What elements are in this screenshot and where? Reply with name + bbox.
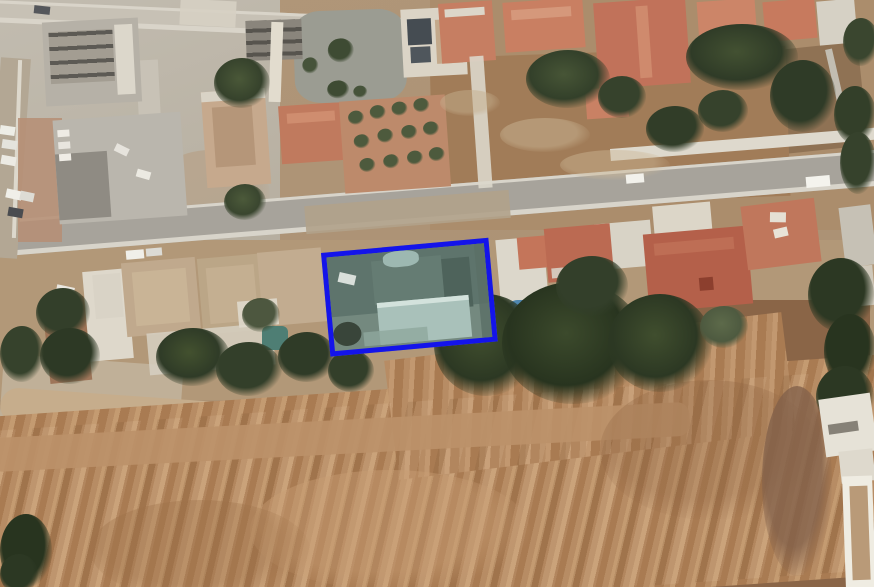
roof-ridge [287,110,336,123]
tree [0,554,38,587]
louver-rows [48,29,115,84]
car-on-road [806,175,831,188]
orchard-tree [391,101,408,116]
teal-light-strip [363,327,428,347]
carpark-building [53,112,188,225]
solar-array [410,46,431,63]
parked-car [146,247,163,256]
orchard-tree [369,105,386,120]
tree [556,256,628,316]
white-framed-court [842,476,874,587]
tree [840,132,874,194]
carpark-dark-half [55,151,111,220]
parked-car [0,125,16,136]
plaza-tree [302,57,319,74]
tree [598,76,646,118]
orchard-tree [353,134,370,149]
car-on-road [626,173,645,184]
parked-car [136,169,152,181]
white-rooftop-unit [773,227,789,239]
tree [224,184,266,220]
tree [214,58,270,108]
white-roof-edge [114,24,136,95]
tree [328,350,374,392]
orchard-tree [423,121,440,136]
white-building-br [818,393,874,458]
tree [216,342,282,396]
orchard-tree [377,128,394,143]
terracotta-roof [502,0,585,53]
lot-debris [560,150,670,180]
parked-car [126,249,145,260]
tree [843,18,874,66]
parcel-boundary [321,238,498,357]
roof-ridge [654,237,735,256]
tree [278,332,336,382]
plaza-tree [327,80,350,99]
louver-roof-building [42,18,142,107]
tree [0,326,44,382]
courtyard-inner [212,105,256,168]
solar-array [407,18,432,45]
parked-car [114,143,130,156]
terracotta-roof [740,198,821,271]
tree [242,298,280,332]
paved-plaza [292,8,407,104]
dark-opening [828,421,859,435]
parked-car [57,129,69,137]
beige-roof-house [121,257,201,337]
white-driveway [92,273,124,319]
parked-car [1,139,17,150]
orchard-tree [383,154,400,169]
orchard-tree [428,147,445,162]
white-structure [179,0,236,27]
satellite-map-image [0,0,874,587]
plaza-tree [353,85,367,97]
orchard-tree [401,124,418,139]
lot-debris [500,118,590,152]
orchard-tree [359,157,376,172]
terracotta-roof [438,0,496,64]
tree [40,328,100,384]
parked-car [58,141,70,149]
orchard [339,94,451,193]
bush [332,321,362,347]
roof-highlight [132,268,191,327]
plaza-tree [327,38,354,63]
orchard-tree [413,98,430,113]
dark-skylight [699,277,714,291]
tree [698,90,748,132]
roof-ridge [635,6,652,79]
tree [646,106,704,152]
olive-tree [700,306,748,348]
roof-ridge [511,6,572,20]
court-inner [849,486,870,581]
white-rooftop-unit [770,212,786,222]
parked-car [59,153,71,161]
orchard-tree [407,150,424,165]
terracotta-house [278,102,348,164]
white-trim [444,7,484,18]
orchard-tree [348,110,365,125]
tree-cluster [608,294,712,392]
lot-debris [440,90,500,116]
car-on-road [34,5,51,15]
tree [770,60,836,132]
